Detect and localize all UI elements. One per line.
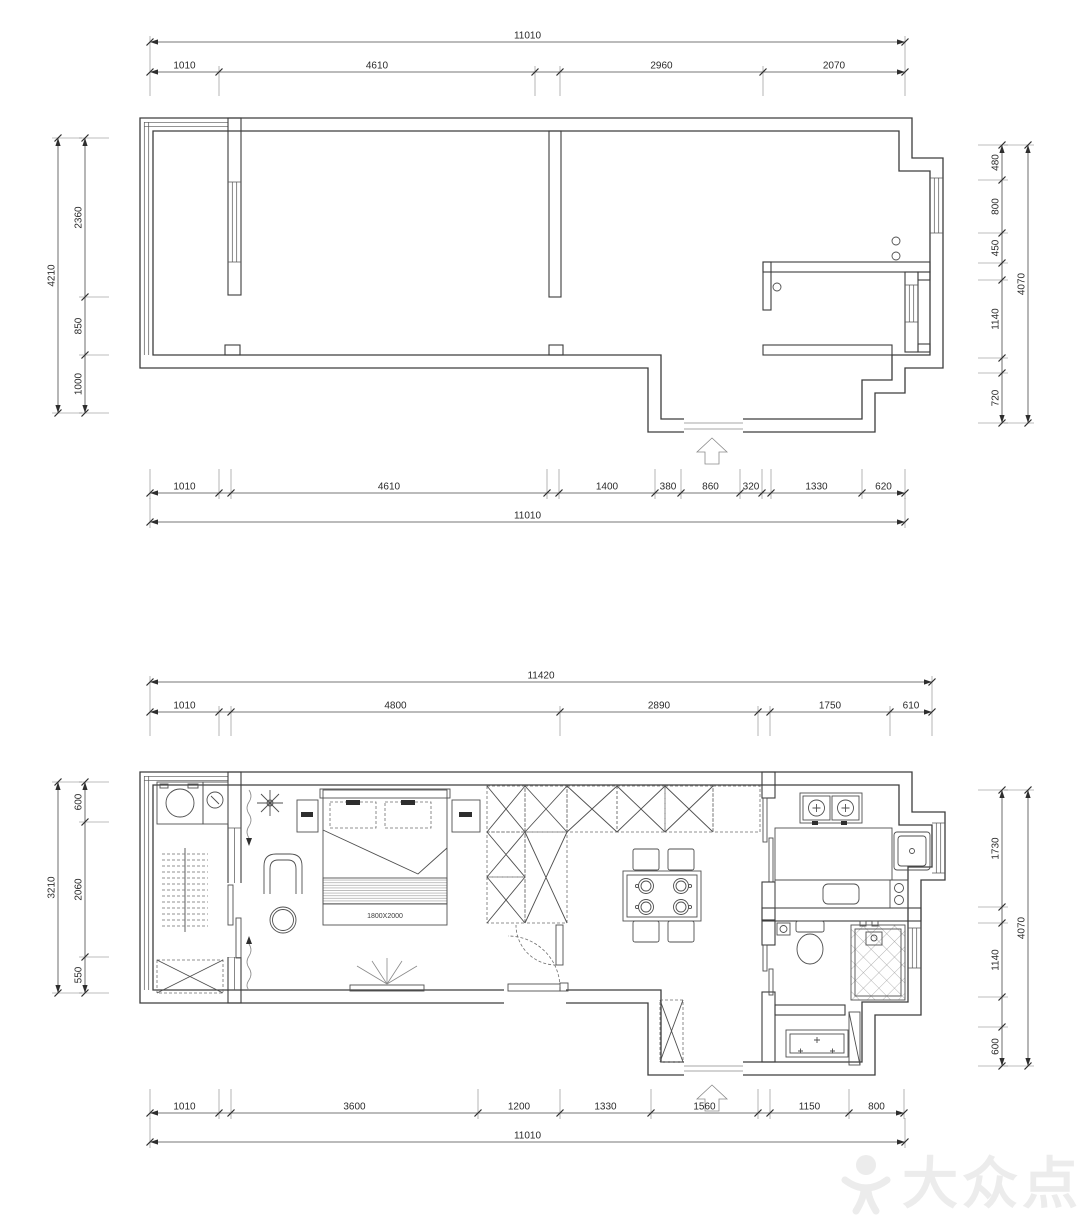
dim-label: 2890 [648, 701, 671, 712]
dining-chair [668, 849, 694, 870]
dim-label: 4070 [1017, 272, 1028, 295]
p2-dim-right-total: 4070 [1004, 787, 1034, 1070]
dim-label: 800 [868, 1102, 885, 1113]
dim-label: 450 [991, 239, 1002, 256]
dim-label: 4800 [384, 701, 407, 712]
p1-dim-bottom: 1010461014003808603201330620 [147, 469, 909, 499]
dim-label: 11010 [514, 31, 542, 42]
p2-balcony-laundry [157, 782, 228, 993]
dim-label: 850 [74, 317, 85, 334]
dim-label: 1140 [991, 949, 1002, 971]
dim-label: 320 [743, 482, 760, 493]
dim-label: 1330 [805, 482, 828, 493]
dim-label: 860 [702, 482, 719, 493]
washing-machine [157, 782, 203, 824]
cutting-board [823, 884, 859, 904]
dim-label: 11010 [514, 1131, 542, 1142]
dim-label: 2360 [74, 206, 85, 229]
interior-door [516, 925, 563, 965]
wardrobe-cell [487, 877, 525, 923]
kitchen-sink [894, 832, 930, 870]
dim-label: 11420 [527, 671, 555, 682]
dim-label: 1400 [596, 482, 619, 493]
dim-label: 1560 [693, 1102, 716, 1113]
p1-dim-top-total: 11010 [147, 31, 909, 67]
dining-chair [668, 921, 694, 942]
dim-label: 4070 [1017, 916, 1028, 939]
dim-label: 800 [991, 198, 1002, 215]
tv [350, 958, 424, 991]
dim-label: 600 [74, 793, 85, 810]
p1-dim-top: 1010461029602070 [147, 61, 909, 97]
double-bed: 1800X2000 [320, 789, 450, 925]
floorplan-page: 1101010104610296020704210236085010004808… [0, 0, 1080, 1223]
p1-dim-left: 23608501000 [74, 135, 110, 417]
shower-area [851, 921, 905, 1000]
dim-label: 2070 [823, 61, 846, 72]
floor-drain [777, 923, 790, 935]
dim-label: 4210 [47, 264, 58, 287]
wardrobe-cell [617, 786, 665, 832]
dim-label: 3210 [47, 876, 58, 899]
dim-label: 4610 [378, 482, 401, 493]
p2-bedroom: 1800X2000 [246, 789, 568, 1005]
p2-dim-top: 1010480028901750610 [147, 701, 936, 737]
entry-arrow-icon [697, 438, 727, 464]
dim-label: 1000 [74, 372, 85, 395]
p2-wardrobes [487, 786, 760, 923]
kitchen-counter [775, 828, 892, 880]
round-side-table [270, 907, 296, 933]
p1-dimension-chains: 1101010104610296020704210236085010004808… [47, 31, 1035, 529]
dim-label: 1010 [173, 482, 196, 493]
p2-dim-bottom: 101036001200133015601150800 [147, 1089, 908, 1119]
shoe-cabinet [660, 1000, 683, 1062]
wardrobe-cell [487, 786, 525, 832]
bed-size-label: 1800X2000 [367, 913, 403, 920]
curtain-symbol [246, 790, 252, 990]
bottom-wall-door [504, 936, 568, 1005]
gas-stove [800, 793, 862, 825]
dim-label: 1750 [819, 701, 842, 712]
dim-label: 610 [903, 701, 920, 712]
toilet [796, 921, 824, 964]
dining-table [623, 871, 701, 921]
dim-label: 1010 [173, 701, 196, 712]
laundry-sink [203, 782, 228, 824]
p1-dim-bottom-total: 11010 [147, 498, 909, 528]
dim-label: 2060 [74, 878, 85, 901]
plan1-original-structure: 1101010104610296020704210236085010004808… [47, 31, 1035, 529]
dim-label: 1150 [799, 1102, 821, 1113]
p2-dim-left: 6002060550 [74, 779, 110, 997]
dim-label: 1200 [508, 1102, 531, 1113]
p2-dim-top-total: 11420 [147, 671, 936, 707]
dining-chair [633, 921, 659, 942]
drying-rack [162, 848, 208, 932]
dining-chair [633, 849, 659, 870]
dim-label: 1330 [594, 1102, 617, 1113]
nightstand [452, 800, 480, 832]
dim-label: 480 [991, 154, 1002, 171]
p2-dining [623, 849, 701, 942]
plant [257, 790, 283, 816]
p1-walls [140, 118, 943, 434]
p2-bathroom [777, 921, 905, 1057]
lower-counter [775, 880, 908, 908]
p2-dim-right: 17301140600 [978, 787, 1008, 1070]
place-setting [635, 879, 691, 915]
p1-dim-right-total: 4070 [1004, 142, 1034, 427]
wardrobe-cell [665, 786, 713, 832]
wardrobe-cell [525, 832, 567, 923]
dim-label: 2960 [650, 61, 673, 72]
dim-label: 620 [875, 482, 892, 493]
dianping-logo-icon [845, 1155, 887, 1211]
plan2-furnished-layout: 1800X2000 [47, 671, 1035, 1149]
dim-label: 600 [991, 1038, 1002, 1055]
vanity-sink [786, 1030, 848, 1057]
p2-dimension-chains: 1142010104800289017506103210600206055017… [47, 671, 1035, 1149]
wardrobe-cell [487, 832, 525, 877]
floorplan-canvas: 1101010104610296020704210236085010004808… [0, 0, 1080, 1223]
p2-kitchen [775, 793, 930, 908]
dim-label: 1010 [173, 61, 196, 72]
balcony-cabinet [157, 960, 223, 993]
dim-label: 1730 [991, 837, 1002, 860]
dim-label: 1010 [173, 1102, 196, 1113]
wardrobe-cell [567, 786, 617, 832]
dim-label: 4610 [366, 61, 389, 72]
dim-label: 550 [74, 966, 85, 983]
watermark-text: 大众点评 [902, 1152, 1080, 1217]
nightstand [297, 800, 318, 832]
dim-label: 380 [660, 482, 677, 493]
p1-dim-right: 4808004501140720 [978, 142, 1008, 427]
dim-label: 1140 [991, 308, 1002, 330]
dim-label: 3600 [343, 1102, 366, 1113]
dim-label: 11010 [514, 511, 542, 522]
watermark: 大众点评 [845, 1152, 1080, 1217]
p1-fixtures [773, 237, 900, 291]
dim-label: 720 [991, 389, 1002, 406]
wardrobe-cell [525, 786, 567, 832]
p2-dim-bottom-total: 11010 [147, 1118, 909, 1148]
armchair [264, 854, 302, 894]
cabinet-cell [713, 786, 760, 832]
